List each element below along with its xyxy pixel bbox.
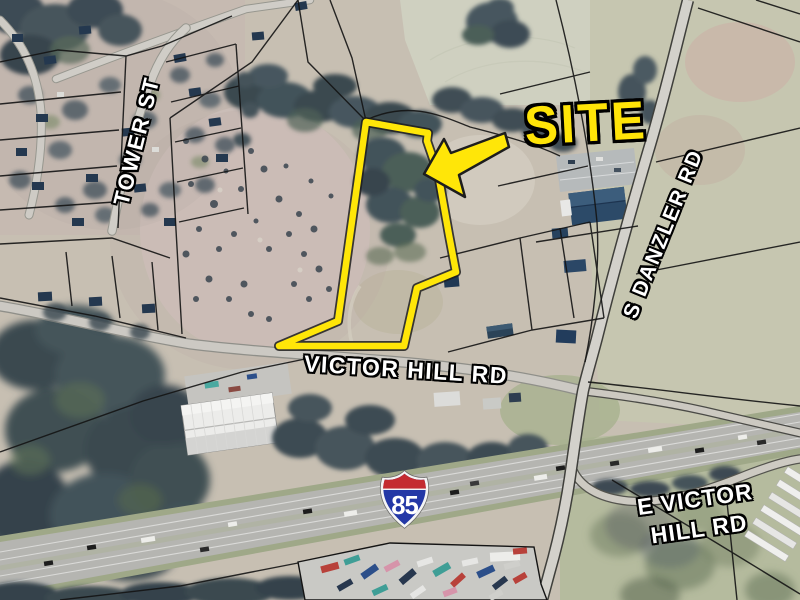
site-label: SITE — [523, 89, 649, 158]
interstate-85-number: 85 — [391, 492, 418, 520]
aerial-map: 85 SITE TOWER ST S DANZLER RD VICTOR HIL… — [0, 0, 800, 600]
